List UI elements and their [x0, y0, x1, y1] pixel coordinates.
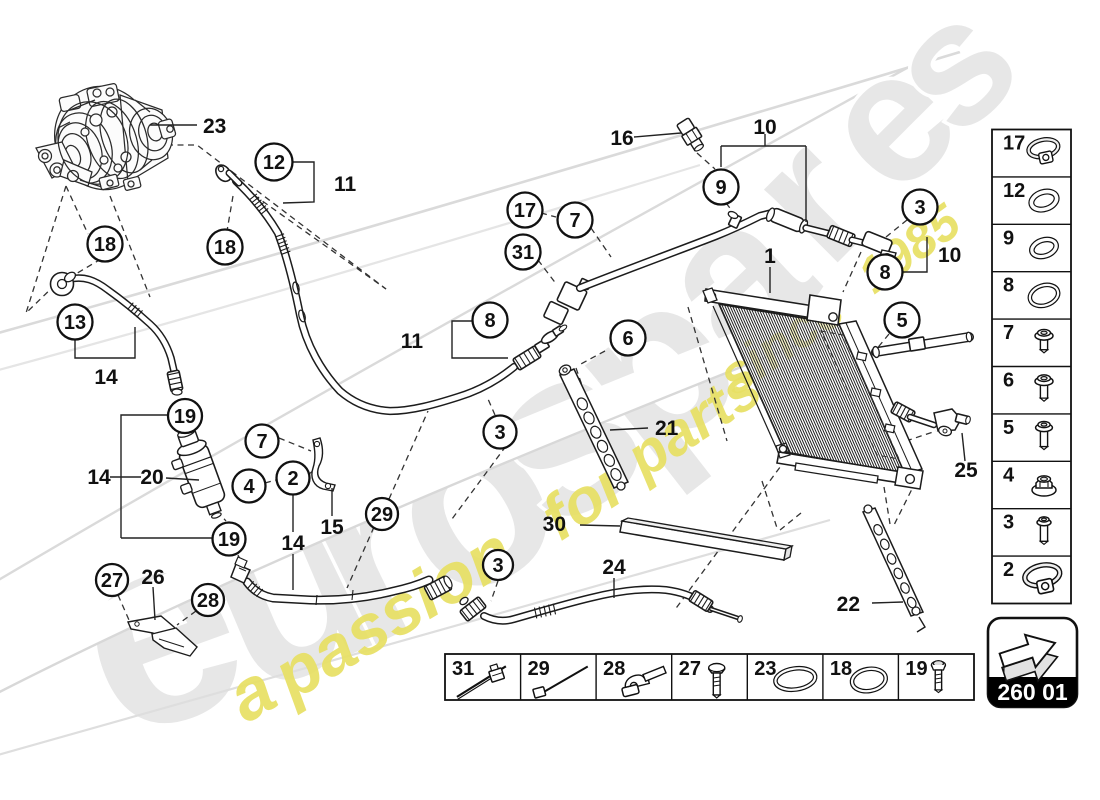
svg-text:23: 23: [754, 658, 776, 680]
svg-text:18: 18: [214, 237, 236, 259]
svg-text:260 01: 260 01: [997, 679, 1068, 705]
svg-text:23: 23: [203, 115, 226, 138]
svg-text:2: 2: [287, 468, 298, 490]
svg-text:21: 21: [655, 417, 679, 440]
svg-text:6: 6: [1003, 370, 1014, 392]
svg-text:1: 1: [764, 245, 776, 268]
svg-text:14: 14: [94, 366, 118, 389]
svg-text:11: 11: [334, 173, 357, 196]
svg-text:16: 16: [610, 127, 633, 150]
svg-text:17: 17: [1003, 133, 1025, 155]
svg-text:7: 7: [1003, 322, 1014, 344]
svg-text:14: 14: [87, 466, 111, 489]
svg-text:31: 31: [512, 242, 534, 264]
svg-text:17: 17: [514, 200, 536, 222]
svg-text:12: 12: [1003, 180, 1025, 202]
svg-text:19: 19: [174, 406, 196, 428]
svg-text:3: 3: [914, 197, 925, 219]
svg-text:10: 10: [938, 244, 961, 267]
svg-text:4: 4: [243, 476, 255, 498]
svg-text:4: 4: [1003, 464, 1015, 486]
svg-text:3: 3: [1003, 512, 1014, 534]
svg-text:24: 24: [602, 556, 626, 579]
svg-text:28: 28: [197, 590, 219, 612]
svg-text:8: 8: [879, 262, 890, 284]
svg-text:8: 8: [1003, 275, 1014, 297]
svg-text:12: 12: [263, 152, 285, 174]
svg-text:10: 10: [753, 116, 776, 139]
svg-text:18: 18: [830, 658, 852, 680]
svg-text:31: 31: [452, 658, 474, 680]
svg-text:27: 27: [101, 570, 123, 592]
svg-text:5: 5: [1003, 417, 1014, 439]
svg-text:26: 26: [141, 566, 164, 589]
svg-text:8: 8: [484, 310, 495, 332]
svg-text:19: 19: [905, 658, 927, 680]
svg-text:7: 7: [569, 210, 580, 232]
svg-text:18: 18: [94, 234, 116, 256]
svg-text:2: 2: [1003, 559, 1014, 581]
svg-text:7: 7: [256, 431, 267, 453]
svg-text:30: 30: [543, 513, 566, 536]
svg-text:13: 13: [64, 312, 86, 334]
svg-text:29: 29: [528, 658, 550, 680]
svg-text:20: 20: [140, 466, 163, 489]
svg-text:6: 6: [622, 328, 633, 350]
svg-text:11: 11: [401, 330, 424, 353]
svg-text:27: 27: [679, 658, 701, 680]
svg-text:15: 15: [320, 516, 344, 539]
svg-text:3: 3: [494, 422, 505, 444]
svg-text:29: 29: [371, 504, 393, 526]
svg-text:3: 3: [492, 555, 503, 577]
svg-text:22: 22: [837, 593, 860, 616]
svg-text:25: 25: [954, 459, 978, 482]
svg-text:28: 28: [603, 658, 625, 680]
svg-text:9: 9: [1003, 227, 1014, 249]
svg-text:19: 19: [218, 529, 240, 551]
svg-text:9: 9: [715, 177, 726, 199]
svg-text:14: 14: [281, 532, 305, 555]
svg-text:5: 5: [896, 310, 907, 332]
